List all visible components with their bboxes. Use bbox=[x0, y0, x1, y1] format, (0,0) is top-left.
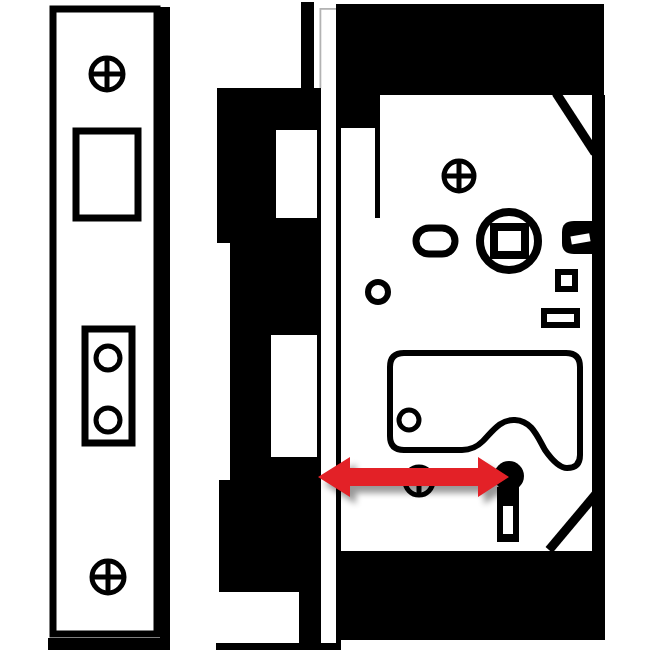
door-mass-lower bbox=[219, 480, 321, 592]
strike-plate-body bbox=[53, 9, 157, 634]
oval-slot bbox=[416, 228, 455, 254]
door-mass-bottom-right bbox=[341, 551, 605, 640]
case-left-edge-line bbox=[375, 95, 380, 218]
keep-hole-bottom bbox=[96, 408, 120, 432]
strike-plate-bottom-screw-icon bbox=[92, 561, 124, 593]
door-top-bar bbox=[301, 2, 314, 88]
diagram-canvas bbox=[0, 0, 650, 650]
forend-strip bbox=[321, 8, 336, 643]
deadbolt-cutout bbox=[271, 335, 317, 457]
edge-bolt bbox=[562, 221, 605, 254]
keyhole-slit bbox=[503, 506, 513, 534]
strike-plate-shadow-right bbox=[160, 7, 170, 650]
forend-hairline-left bbox=[320, 8, 322, 88]
forend-hairline-top bbox=[321, 8, 336, 10]
lock-forend bbox=[320, 4, 342, 650]
spindle-square-hole bbox=[494, 227, 525, 255]
strike-plate-top-screw-icon bbox=[91, 58, 123, 90]
latch-cutout bbox=[276, 130, 317, 218]
strike-plate-assembly bbox=[48, 7, 170, 650]
small-square-opening bbox=[558, 272, 575, 289]
small-rect-opening bbox=[544, 311, 577, 325]
keep-hole-top bbox=[96, 346, 120, 370]
door-tab-over-case bbox=[336, 4, 379, 128]
forend-rear-line bbox=[336, 4, 341, 650]
strike-plate-shadow-bottom bbox=[48, 638, 170, 650]
latch-opening bbox=[76, 131, 138, 218]
door-mass-bottom-stub bbox=[299, 592, 321, 643]
lock-backset-diagram bbox=[0, 0, 650, 650]
spindle-follower bbox=[480, 212, 538, 270]
deadbolt-keep bbox=[85, 329, 132, 443]
lever-plate-hole bbox=[399, 410, 419, 430]
case-screw-icon bbox=[444, 161, 474, 191]
pivot-hole bbox=[368, 282, 388, 302]
door-bottom-bar bbox=[216, 643, 341, 650]
